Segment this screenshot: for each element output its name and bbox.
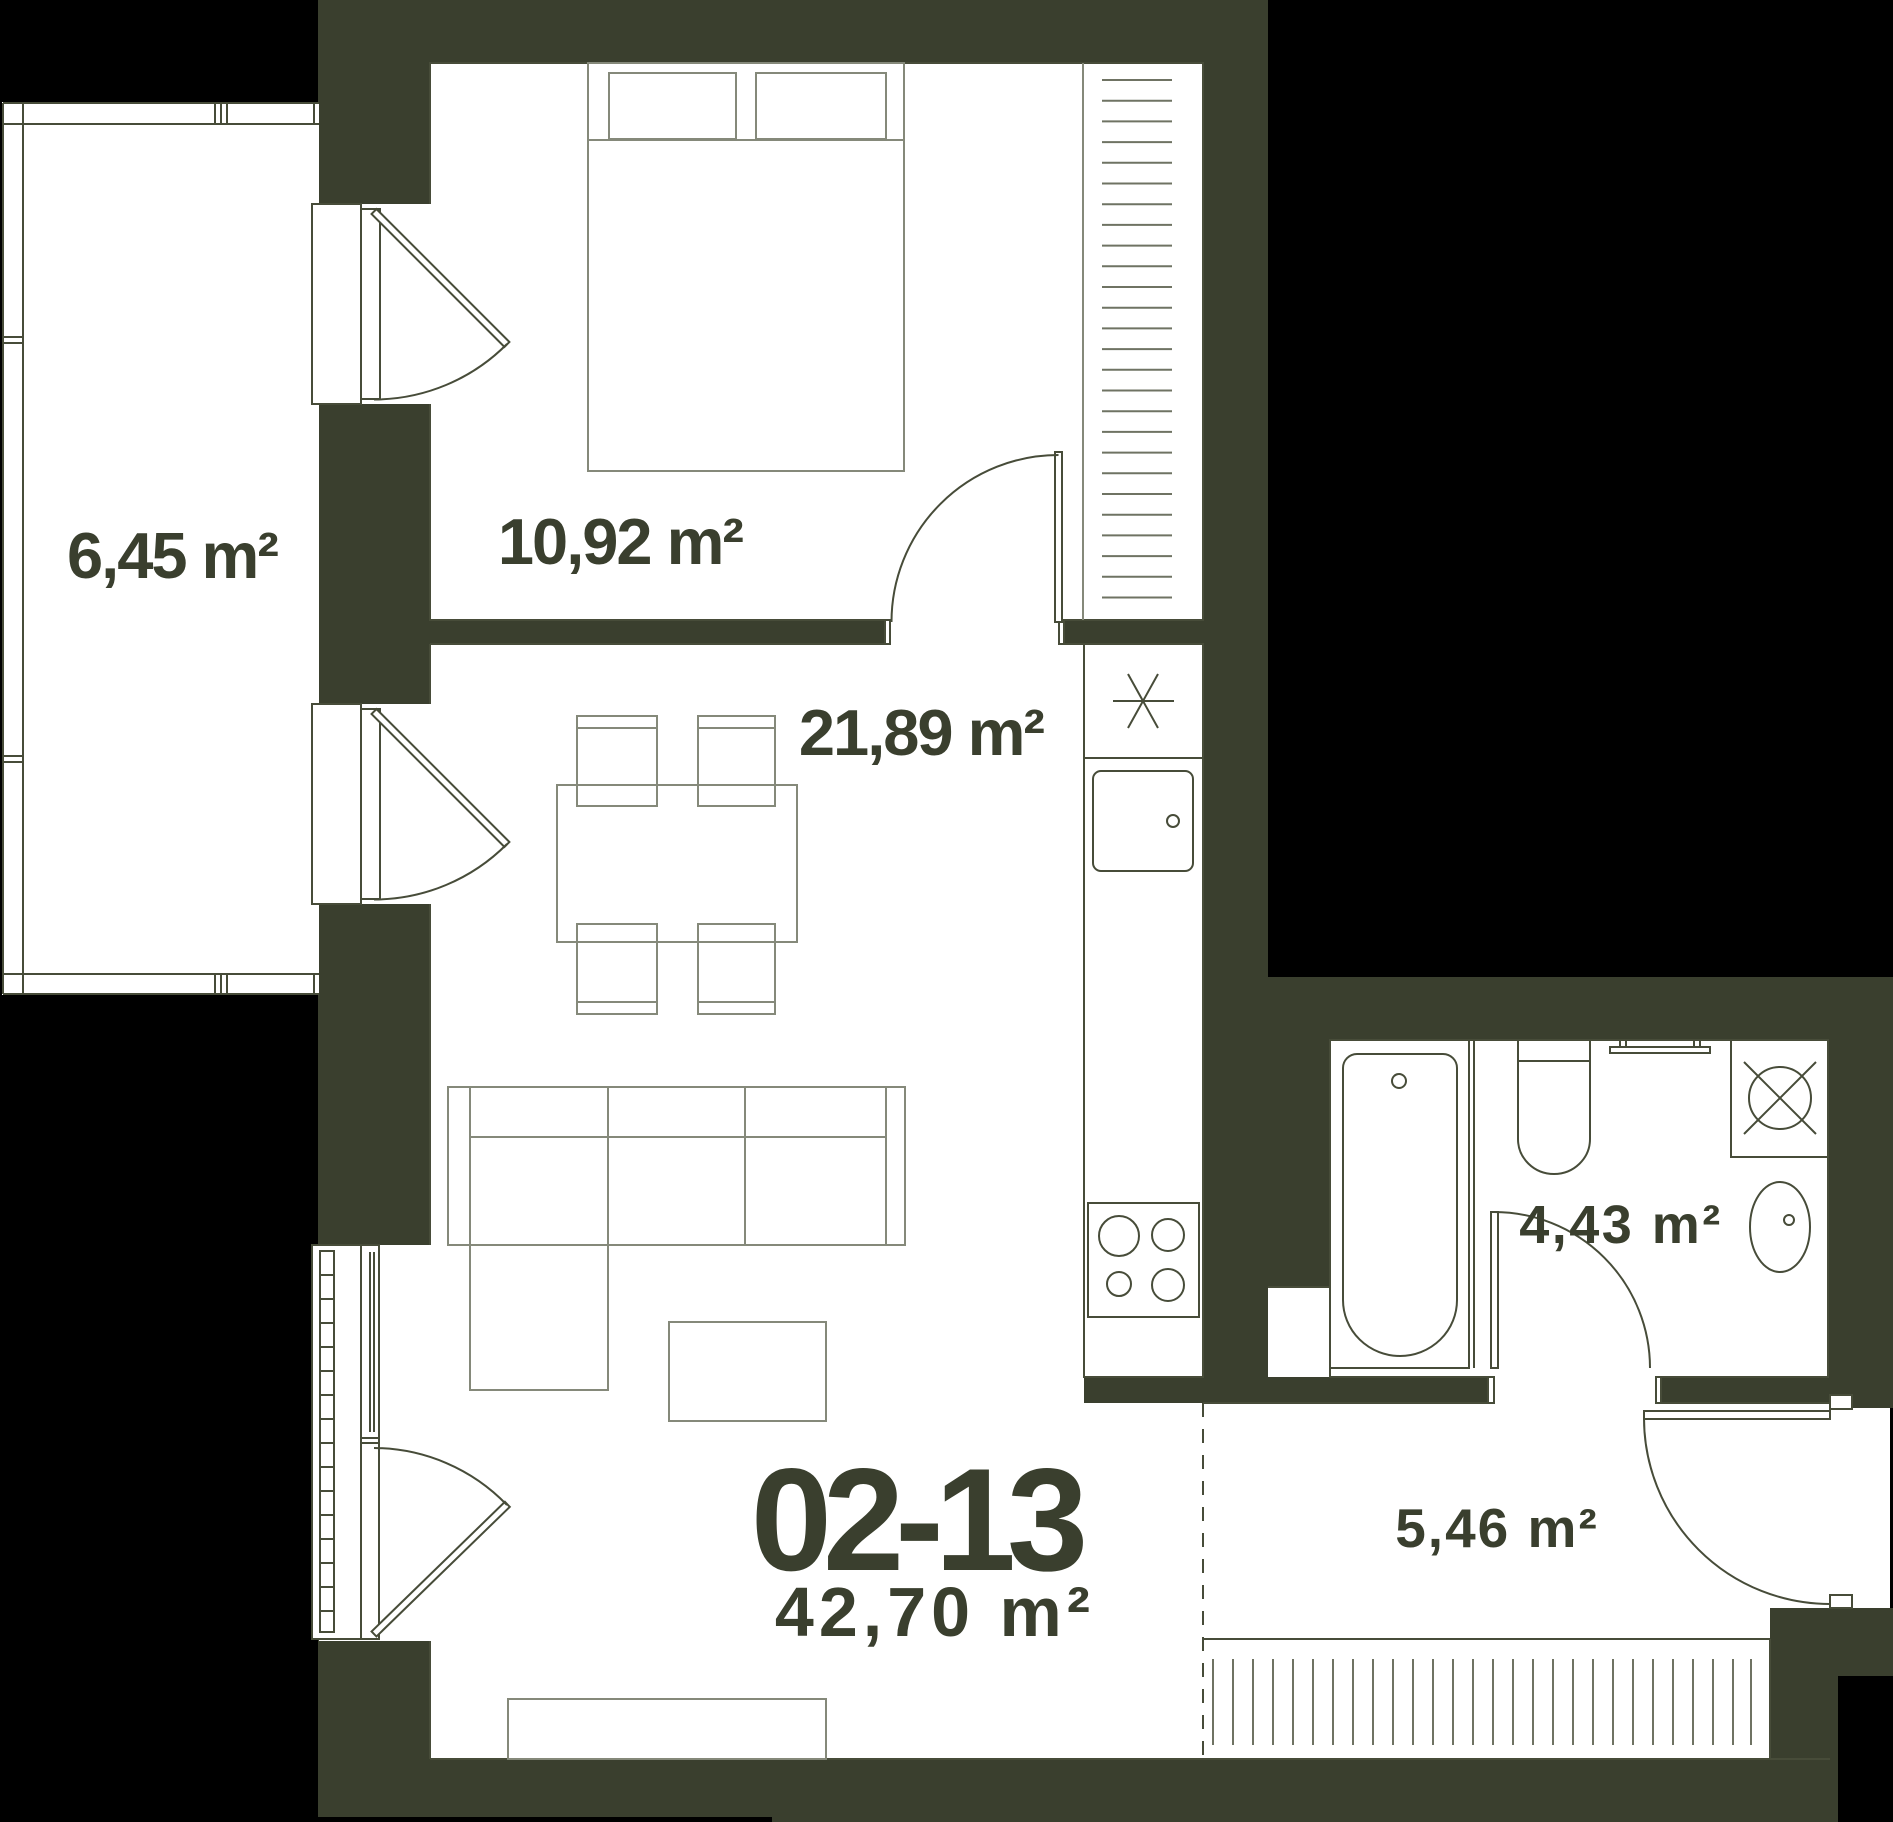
svg-text:6,45 m²: 6,45 m²	[67, 519, 278, 592]
svg-text:4,43 m²: 4,43 m²	[1519, 1195, 1723, 1255]
svg-text:21,89 m²: 21,89 m²	[799, 696, 1045, 769]
svg-text:42,70 m²: 42,70 m²	[775, 1573, 1095, 1651]
svg-text:10,92 m²: 10,92 m²	[498, 505, 744, 578]
svg-text:5,46 m²: 5,46 m²	[1395, 1497, 1599, 1559]
